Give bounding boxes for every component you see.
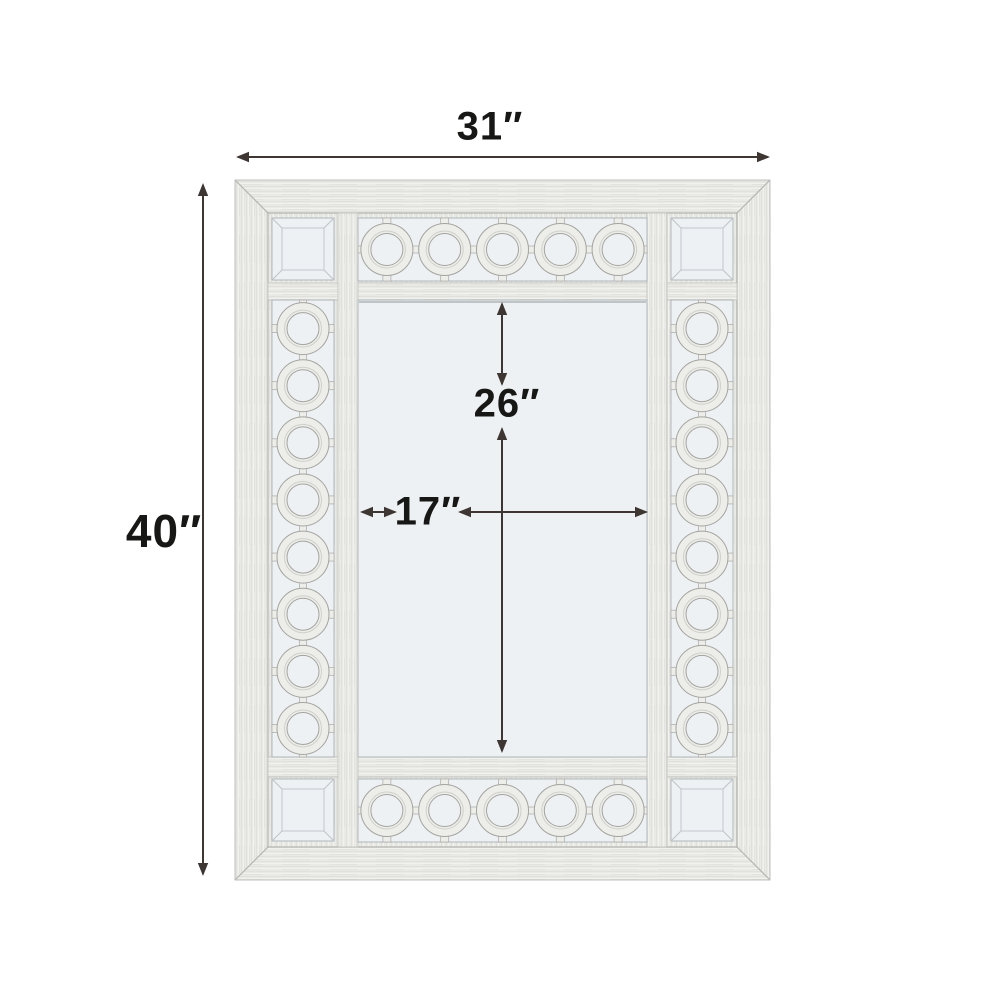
overall-width-label: 31″ <box>457 105 524 150</box>
inner-mirror-width-label: 17″ <box>395 490 462 535</box>
mirror-frame-illustration <box>0 0 1000 1000</box>
inner-mirror-height-label: 26″ <box>474 382 541 427</box>
overall-height-label: 40″ <box>126 504 202 558</box>
mirror-dimension-diagram: 31″ 40″ 26″ 17″ <box>0 0 1000 1000</box>
